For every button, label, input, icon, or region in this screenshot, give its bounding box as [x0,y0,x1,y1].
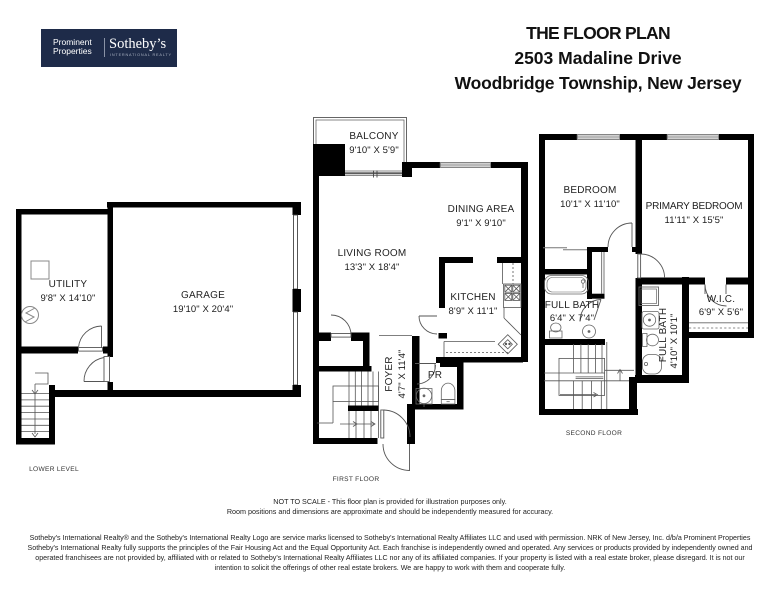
svg-text:4'7" X 11'4": 4'7" X 11'4" [397,350,408,399]
svg-text:6'9" X 5'6": 6'9" X 5'6" [699,307,743,318]
svg-text:FIRST FLOOR: FIRST FLOOR [333,476,380,483]
svg-text:KITCHEN: KITCHEN [450,292,495,303]
svg-text:9'1" X 9'10": 9'1" X 9'10" [456,218,506,229]
svg-text:PRIMARY BEDROOM: PRIMARY BEDROOM [646,201,743,212]
svg-text:LOWER LEVEL: LOWER LEVEL [29,466,79,473]
svg-text:SECOND FLOOR: SECOND FLOOR [566,430,622,437]
svg-text:PR: PR [428,370,442,381]
svg-text:W.I.C.: W.I.C. [707,294,735,305]
svg-text:BALCONY: BALCONY [349,131,398,142]
svg-text:8'9" X 11'1": 8'9" X 11'1" [449,306,498,317]
svg-text:FOYER: FOYER [384,356,395,391]
svg-text:4'10" X 10'1": 4'10" X 10'1" [669,314,680,369]
svg-text:13'3" X 18'4": 13'3" X 18'4" [345,262,400,273]
svg-text:9'10" X 5'9": 9'10" X 5'9" [349,145,399,156]
svg-text:FULL BATH: FULL BATH [545,300,600,311]
svg-text:LIVING ROOM: LIVING ROOM [338,248,407,259]
svg-text:BEDROOM: BEDROOM [563,185,616,196]
svg-text:FULL BATH: FULL BATH [658,308,669,363]
svg-text:UTILITY: UTILITY [49,279,88,290]
svg-text:19'10" X 20'4": 19'10" X 20'4" [173,304,233,315]
svg-text:10'1" X 11'10": 10'1" X 11'10" [560,199,620,210]
svg-text:GARAGE: GARAGE [181,290,225,301]
svg-text:DINING AREA: DINING AREA [448,204,515,215]
svg-text:9'8" X 14'10": 9'8" X 14'10" [41,293,96,304]
svg-text:6'4" X 7'4": 6'4" X 7'4" [550,313,594,324]
svg-text:11'11" X 15'5": 11'11" X 15'5" [665,215,724,226]
